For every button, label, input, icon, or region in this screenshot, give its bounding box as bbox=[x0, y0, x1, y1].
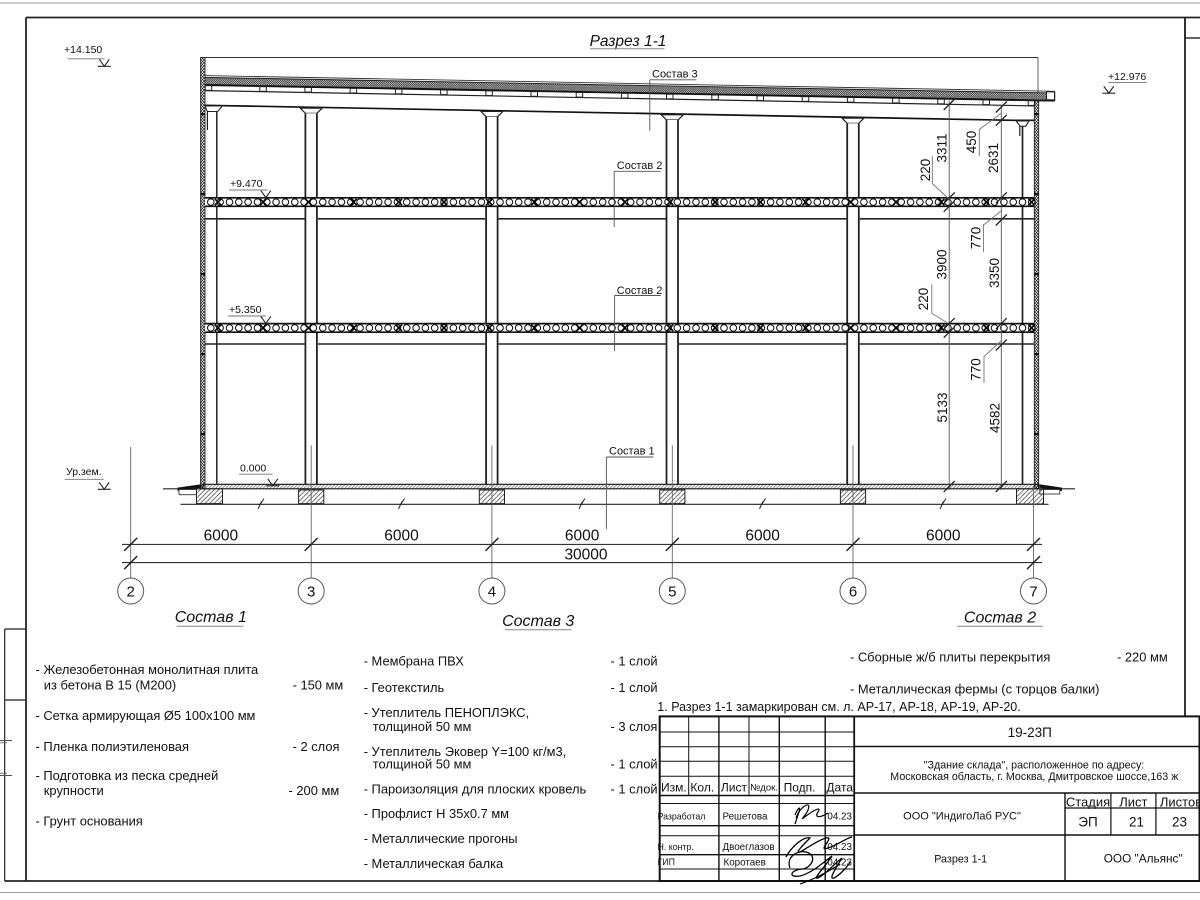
svg-text:- 1 слой: - 1 слой bbox=[611, 782, 658, 797]
svg-text:7: 7 bbox=[1029, 583, 1037, 600]
svg-text:2: 2 bbox=[127, 583, 135, 600]
svg-text:- Железобетонная монолитная п: - Железобетонная монолитная плита bbox=[36, 662, 260, 677]
svg-text:Состав 2: Состав 2 bbox=[617, 160, 663, 172]
svg-text:3: 3 bbox=[307, 583, 315, 600]
svg-text:Изм.: Изм. bbox=[661, 781, 687, 795]
svg-text:Ур.зем.: Ур.зем. bbox=[66, 466, 102, 478]
svg-text:220: 220 bbox=[916, 288, 931, 311]
svg-text:"Здание склада", расположенное: "Здание склада", расположенное по адресу… bbox=[924, 760, 1145, 772]
svg-text:0.000: 0.000 bbox=[240, 463, 266, 475]
svg-text:Н. контр.: Н. контр. bbox=[658, 842, 694, 852]
svg-text:4582: 4582 bbox=[988, 403, 1003, 433]
svg-text:770: 770 bbox=[968, 227, 983, 250]
svg-text:+9.470: +9.470 bbox=[230, 178, 263, 190]
svg-text:- 1 слой: - 1 слой bbox=[611, 680, 658, 695]
svg-text:3311: 3311 bbox=[935, 133, 950, 162]
svg-text:6000: 6000 bbox=[926, 528, 961, 545]
svg-text:№док.: №док. bbox=[750, 783, 778, 794]
svg-text:04.23: 04.23 bbox=[827, 812, 852, 823]
svg-text:- Сборные ж/б плиты перекрытия: - Сборные ж/б плиты перекрытия bbox=[850, 650, 1050, 665]
svg-text:- Профлист Н 35х0.7 мм: - Профлист Н 35х0.7 мм bbox=[364, 806, 509, 821]
svg-text:6000: 6000 bbox=[745, 528, 780, 545]
svg-text:ЭП: ЭП bbox=[1078, 815, 1097, 830]
svg-text:21: 21 bbox=[1129, 815, 1144, 830]
svg-text:толщиной 50 мм: толщиной 50 мм bbox=[373, 719, 472, 734]
svg-text:220: 220 bbox=[918, 159, 933, 182]
svg-text:Решетова: Решетова bbox=[723, 812, 768, 823]
svg-text:23: 23 bbox=[1172, 815, 1187, 830]
svg-text:толщиной 50 мм: толщиной 50 мм bbox=[373, 756, 472, 771]
svg-text:- 200 мм: - 200 мм bbox=[289, 783, 340, 798]
svg-text:Состав 2: Состав 2 bbox=[964, 609, 1036, 626]
svg-text:Разработал: Разработал bbox=[658, 812, 706, 822]
svg-text:5: 5 bbox=[668, 583, 676, 600]
svg-text:Лист: Лист bbox=[1119, 795, 1147, 810]
svg-text:1. Разрез 1-1 замаркирован см.: 1. Разрез 1-1 замаркирован см. л. АР-17,… bbox=[657, 700, 1020, 714]
svg-text:Московская область, г. Москва,: Московская область, г. Москва, Дмитровск… bbox=[890, 771, 1179, 783]
svg-text:Состав 1: Состав 1 bbox=[175, 609, 247, 626]
svg-text:- Пароизоляция для плоских кро: - Пароизоляция для плоских кровель bbox=[364, 782, 587, 797]
svg-text:5133: 5133 bbox=[935, 392, 950, 422]
svg-text:- Грунт основания: - Грунт основания bbox=[36, 814, 143, 829]
svg-text:Листов: Листов bbox=[1160, 795, 1200, 810]
svg-text:- 1 слой: - 1 слой bbox=[611, 654, 658, 669]
svg-text:450: 450 bbox=[964, 131, 979, 154]
svg-text:- 3 слоя: - 3 слоя bbox=[611, 719, 658, 734]
svg-text:Дата: Дата bbox=[826, 781, 853, 795]
svg-text:Состав 3: Состав 3 bbox=[502, 613, 574, 630]
svg-text:Кол.: Кол. bbox=[690, 781, 714, 795]
svg-text:6000: 6000 bbox=[565, 528, 600, 545]
svg-text:2631: 2631 bbox=[986, 143, 1001, 173]
svg-text:Стадия: Стадия bbox=[1066, 795, 1110, 810]
svg-text:из бетона В 15 (М200): из бетона В 15 (М200) bbox=[44, 677, 176, 692]
svg-text:ООО "Альянс": ООО "Альянс" bbox=[1104, 852, 1183, 866]
svg-text:ООО "ИндигоЛаб РУС": ООО "ИндигоЛаб РУС" bbox=[903, 811, 1021, 823]
svg-text:3900: 3900 bbox=[935, 249, 950, 279]
svg-text:Коротаев: Коротаев bbox=[724, 858, 766, 869]
svg-text:6000: 6000 bbox=[384, 528, 419, 545]
svg-text:+14.150: +14.150 bbox=[64, 44, 102, 56]
svg-text:- Сетка армирующая Ø5 100х100: - Сетка армирующая Ø5 100х100 мм bbox=[36, 708, 256, 723]
svg-text:- 220 мм: - 220 мм bbox=[1117, 650, 1168, 665]
svg-text:6000: 6000 bbox=[204, 528, 239, 545]
svg-text:Подп.: Подп. bbox=[784, 781, 816, 795]
svg-text:- Металлическая фермы (с торцо: - Металлическая фермы (с торцов балки) bbox=[850, 682, 1099, 697]
svg-text:Разрез 1-1: Разрез 1-1 bbox=[934, 854, 987, 866]
svg-text:- Металлические прогоны: - Металлические прогоны bbox=[364, 831, 518, 846]
svg-text:ГИП: ГИП bbox=[658, 857, 675, 867]
svg-text:Состав 1: Состав 1 bbox=[609, 446, 655, 458]
svg-text:4: 4 bbox=[488, 583, 496, 600]
svg-text:+5.350: +5.350 bbox=[229, 304, 262, 316]
svg-text:- Пленка полиэтиленовая: - Пленка полиэтиленовая bbox=[36, 739, 189, 754]
svg-text:30000: 30000 bbox=[564, 547, 607, 564]
svg-text:- 1 слой: - 1 слой bbox=[611, 756, 658, 771]
svg-text:Разрез 1-1: Разрез 1-1 bbox=[590, 33, 667, 50]
svg-text:- 2 слоя: - 2 слоя bbox=[293, 739, 340, 754]
svg-text:19-23П: 19-23П bbox=[1008, 725, 1052, 740]
svg-text:крупности: крупности bbox=[44, 783, 104, 798]
svg-text:770: 770 bbox=[969, 358, 984, 381]
svg-text:Двоеглазов: Двоеглазов bbox=[723, 842, 775, 853]
svg-text:- 150 мм: - 150 мм bbox=[293, 677, 344, 692]
svg-text:- Подготовка из песка средней: - Подготовка из песка средней bbox=[36, 768, 219, 783]
svg-text:Лист: Лист bbox=[721, 781, 748, 795]
svg-text:- Мембрана ПВХ: - Мембрана ПВХ bbox=[364, 654, 465, 669]
svg-text:- Утеплитель ПЕНОПЛЭКС,: - Утеплитель ПЕНОПЛЭКС, bbox=[364, 705, 529, 720]
svg-text:- Металлическая балка: - Металлическая балка bbox=[364, 856, 504, 871]
svg-text:+12.976: +12.976 bbox=[1108, 71, 1146, 83]
svg-text:Состав 3: Состав 3 bbox=[652, 68, 698, 80]
svg-text:3350: 3350 bbox=[987, 258, 1002, 288]
svg-text:6: 6 bbox=[849, 583, 857, 600]
svg-text:- Геотекстиль: - Геотекстиль bbox=[364, 680, 445, 695]
